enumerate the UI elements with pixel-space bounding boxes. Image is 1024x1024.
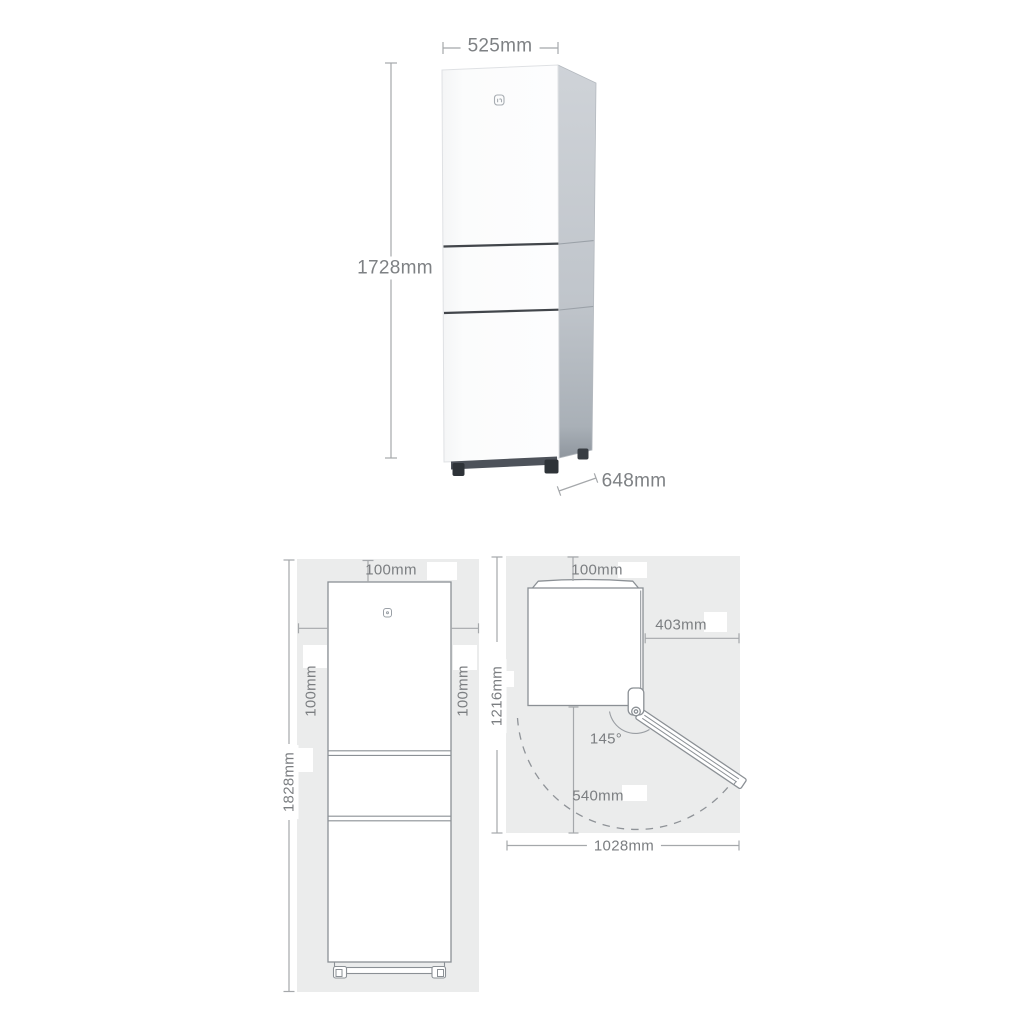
- dimension-label-door-swing-depth: 540mm: [572, 789, 624, 804]
- dimension-label-right-clearance: 403mm: [655, 618, 707, 633]
- dimension-label-front-right-clearance: 100mm: [456, 665, 471, 717]
- perspective-fridge-drawing: [442, 65, 596, 476]
- product-dimension-sheet: 525mm 1728mm 648mm 100mm 100mm 100mm 182…: [0, 0, 1024, 1024]
- top-view-drawing: [518, 580, 747, 830]
- dimension-label-front-left-clearance: 100mm: [304, 665, 319, 717]
- front-right-foot: [545, 460, 559, 474]
- dimension-label-width: 525mm: [461, 35, 540, 58]
- front-left-foot: [453, 463, 465, 476]
- front-view-drawing: [328, 582, 451, 978]
- door-swing-arc: [518, 718, 729, 829]
- linework-svg: [0, 0, 1024, 1024]
- open-door-drawing: [635, 709, 747, 790]
- dimension-label-front-top-clearance: 100mm: [365, 563, 417, 578]
- dimension-label-overall-width: 1028mm: [587, 837, 661, 856]
- dimension-label-overall-height: 1828mm: [280, 745, 299, 819]
- dimension-label-overall-depth: 1216mm: [488, 659, 507, 733]
- dimension-label-depth: 648mm: [602, 472, 667, 491]
- dimension-label-door-angle: 145°: [590, 732, 622, 747]
- dimension-label-height: 1728mm: [350, 257, 440, 280]
- back-foot: [578, 449, 589, 460]
- dimension-label-top-view-top-clearance: 100mm: [571, 563, 623, 578]
